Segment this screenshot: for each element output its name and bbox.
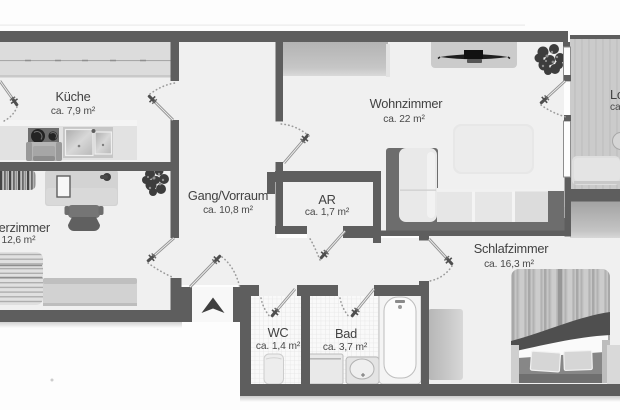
svg-text:ca. 10,8 m²: ca. 10,8 m² — [203, 205, 254, 216]
svg-text:Kinderzimmer: Kinderzimmer — [0, 220, 51, 235]
svg-text:ca. 6,2 m²: ca. 6,2 m² — [610, 102, 620, 113]
svg-text:Wohnzimmer: Wohnzimmer — [370, 96, 444, 111]
svg-text:Gang/Vorraum: Gang/Vorraum — [188, 188, 268, 203]
svg-text:Schlafzimmer: Schlafzimmer — [474, 241, 549, 256]
svg-text:ca. 3,7 m²: ca. 3,7 m² — [323, 342, 368, 353]
svg-text:Küche: Küche — [55, 89, 90, 104]
svg-text:ca. 1,7 m²: ca. 1,7 m² — [305, 207, 350, 218]
svg-text:ca. 7,9 m²: ca. 7,9 m² — [51, 106, 96, 117]
svg-text:Loggia: Loggia — [610, 87, 620, 102]
svg-text:Bad: Bad — [335, 326, 357, 341]
svg-text:WC: WC — [268, 325, 289, 340]
svg-text:ca. 1,4 m²: ca. 1,4 m² — [256, 341, 301, 352]
svg-text:ca. 12,6 m²: ca. 12,6 m² — [0, 235, 36, 246]
svg-text:ca. 16,3 m²: ca. 16,3 m² — [484, 259, 535, 270]
svg-text:ca. 22 m²: ca. 22 m² — [383, 114, 425, 125]
svg-text:AR: AR — [318, 192, 335, 207]
